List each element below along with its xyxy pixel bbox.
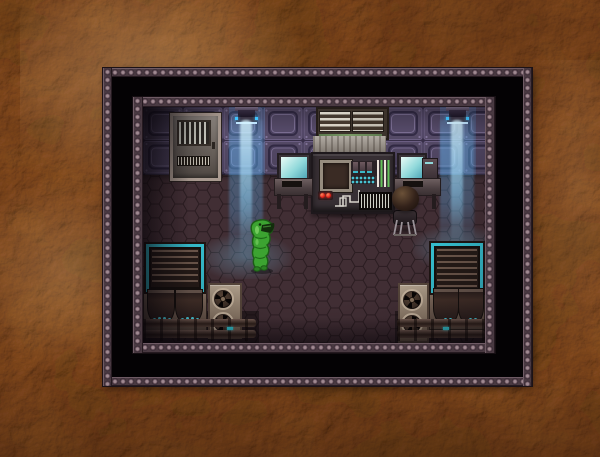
frame-gap [112, 77, 523, 377]
rivet-border [103, 377, 532, 386]
game-window-frame [103, 68, 532, 386]
rivet-border [133, 97, 143, 353]
rivet-border [103, 68, 112, 386]
rivet-border [485, 97, 495, 353]
rivet-border [523, 68, 532, 386]
game-screen-frame [133, 97, 495, 353]
vignette [143, 107, 485, 343]
lab-room-scene [143, 107, 485, 343]
desktop-background [0, 0, 600, 457]
rivet-border [133, 343, 495, 353]
rivet-border [103, 68, 532, 77]
game-viewport[interactable] [143, 107, 485, 343]
rivet-border [133, 97, 495, 107]
